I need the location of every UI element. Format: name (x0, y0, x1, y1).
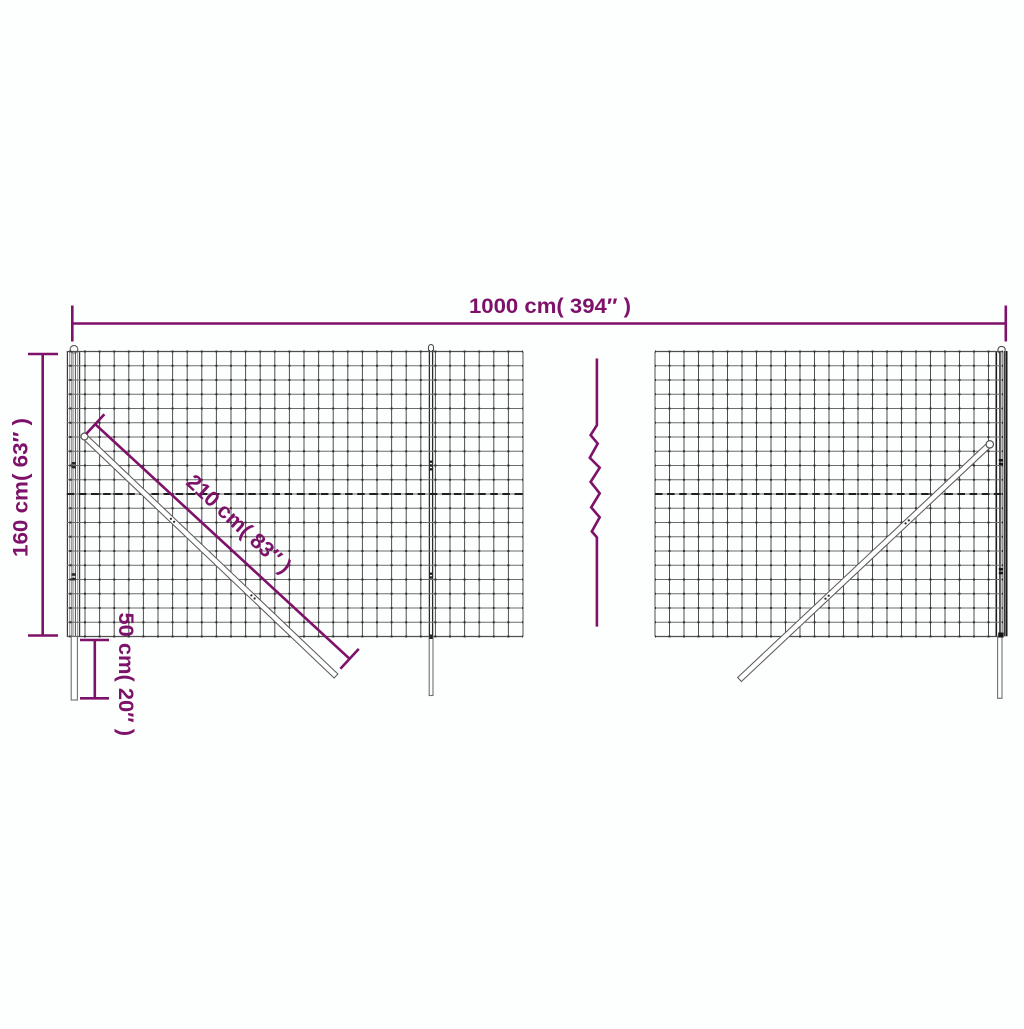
svg-text:1000 cm( 394″ ): 1000 cm( 394″ ) (469, 294, 631, 318)
svg-text:160 cm( 63″ ): 160 cm( 63″ ) (9, 418, 33, 557)
svg-text:50 cm( 20″ ): 50 cm( 20″ ) (114, 613, 138, 737)
